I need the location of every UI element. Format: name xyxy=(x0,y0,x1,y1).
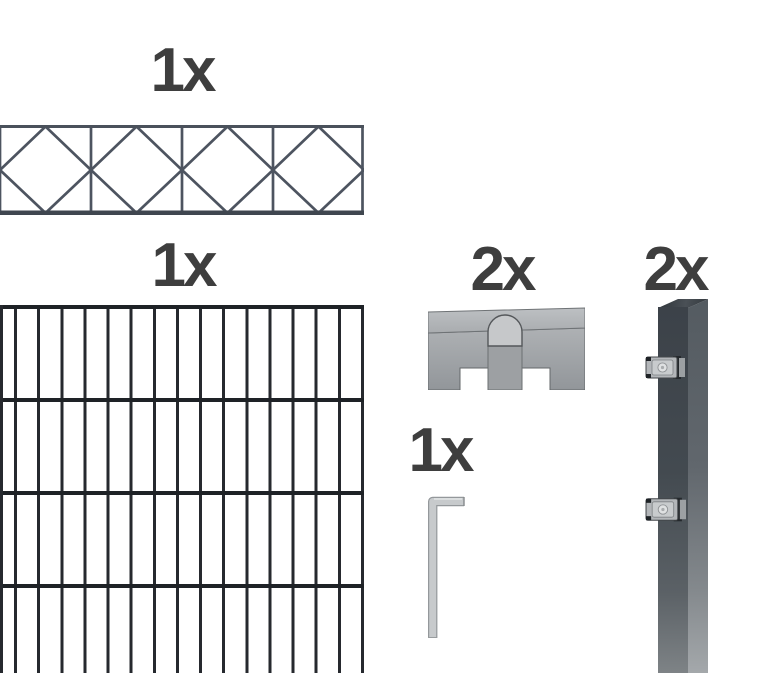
count-label-hex-key: 1x xyxy=(380,420,500,482)
connector-bracket-image xyxy=(428,306,585,390)
post-clamp-lower-image xyxy=(645,495,686,524)
decorative-panel-image xyxy=(0,125,364,215)
hex-key-image xyxy=(424,492,472,642)
fence-post-image xyxy=(658,299,708,673)
count-label-deco-panel: 1x xyxy=(122,40,242,102)
mesh-panel-image xyxy=(0,305,364,673)
count-label-connectors: 2x xyxy=(442,239,562,301)
product-image: 1x 1x 2x 2x 1x xyxy=(0,0,769,673)
post-side-face xyxy=(688,299,708,673)
count-label-posts: 2x xyxy=(615,239,735,301)
post-clamp-upper-image xyxy=(645,354,685,381)
count-label-mesh-panel: 1x xyxy=(123,235,243,297)
